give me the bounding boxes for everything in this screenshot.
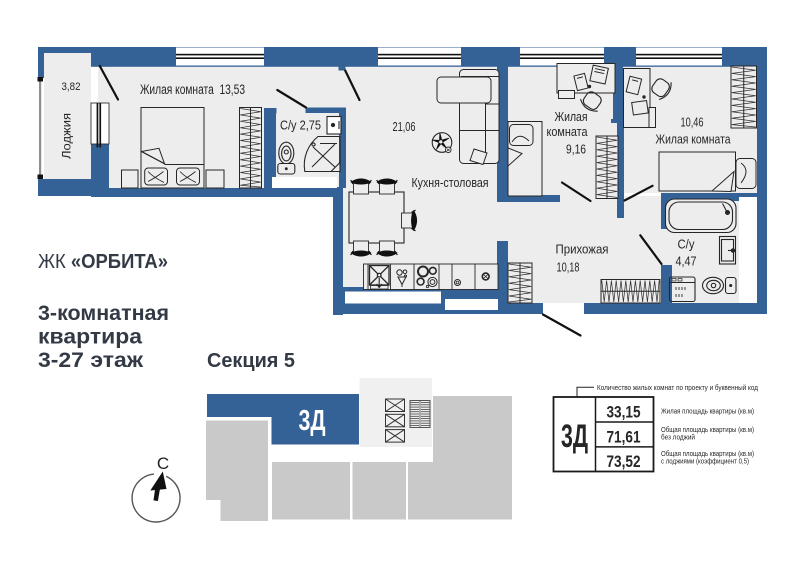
svg-text:квартира: квартира [38, 325, 143, 349]
svg-text:3Д: 3Д [299, 405, 326, 437]
svg-text:С/у: С/у [678, 238, 696, 252]
svg-text:4,47: 4,47 [676, 255, 697, 269]
svg-text:Секция 5: Секция 5 [207, 349, 295, 372]
svg-text:71,61: 71,61 [607, 428, 641, 446]
svg-text:33,15: 33,15 [607, 403, 641, 421]
svg-text:10,18: 10,18 [557, 260, 580, 275]
svg-text:ЖК «ОРБИТА»: ЖК «ОРБИТА» [38, 251, 168, 273]
svg-text:9,16: 9,16 [566, 142, 586, 157]
svg-text:С/у 2,75: С/у 2,75 [280, 119, 321, 133]
svg-text:3-комнатная: 3-комнатная [38, 301, 169, 325]
svg-text:73,52: 73,52 [607, 453, 641, 471]
svg-text:10,46: 10,46 [681, 115, 704, 130]
svg-text:Жилая: Жилая [555, 109, 588, 124]
svg-text:Лоджия: Лоджия [62, 113, 74, 159]
svg-text:С: С [157, 454, 169, 473]
svg-text:Жилая площадь квартиры (кв.м): Жилая площадь квартиры (кв.м) [661, 407, 754, 416]
svg-text:Жилая комната: Жилая комната [656, 132, 732, 147]
svg-text:с лоджиями (коэффициент 0,5): с лоджиями (коэффициент 0,5) [661, 457, 749, 466]
svg-text:комната: комната [547, 124, 589, 139]
svg-text:3Д: 3Д [561, 418, 588, 454]
svg-text:3,82: 3,82 [62, 81, 81, 93]
svg-text:Жилая комната 13,53: Жилая комната 13,53 [140, 82, 245, 97]
svg-text:3-27 этаж: 3-27 этаж [38, 348, 144, 372]
svg-text:21,06: 21,06 [393, 119, 416, 134]
svg-text:Количество жилых комнат по про: Количество жилых комнат по проекту и бук… [597, 383, 759, 392]
svg-text:Прихожая: Прихожая [556, 242, 609, 257]
svg-text:Кухня-столовая: Кухня-столовая [412, 175, 489, 190]
svg-text:без лоджий: без лоджий [661, 433, 695, 442]
